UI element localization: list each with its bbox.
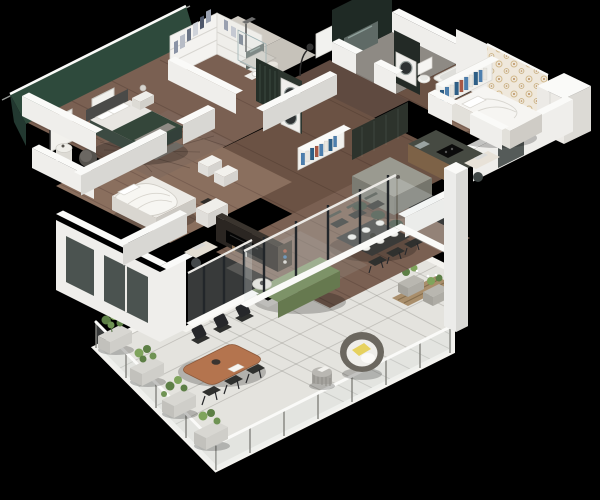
corner-pillar [444, 162, 468, 332]
bowl [212, 359, 221, 365]
floorplan-render [0, 0, 600, 500]
seat-cushion [361, 353, 375, 363]
table-lamp [140, 85, 146, 91]
desk-chair [473, 172, 483, 182]
facade-corner [160, 259, 186, 342]
egg-chair [340, 332, 384, 380]
